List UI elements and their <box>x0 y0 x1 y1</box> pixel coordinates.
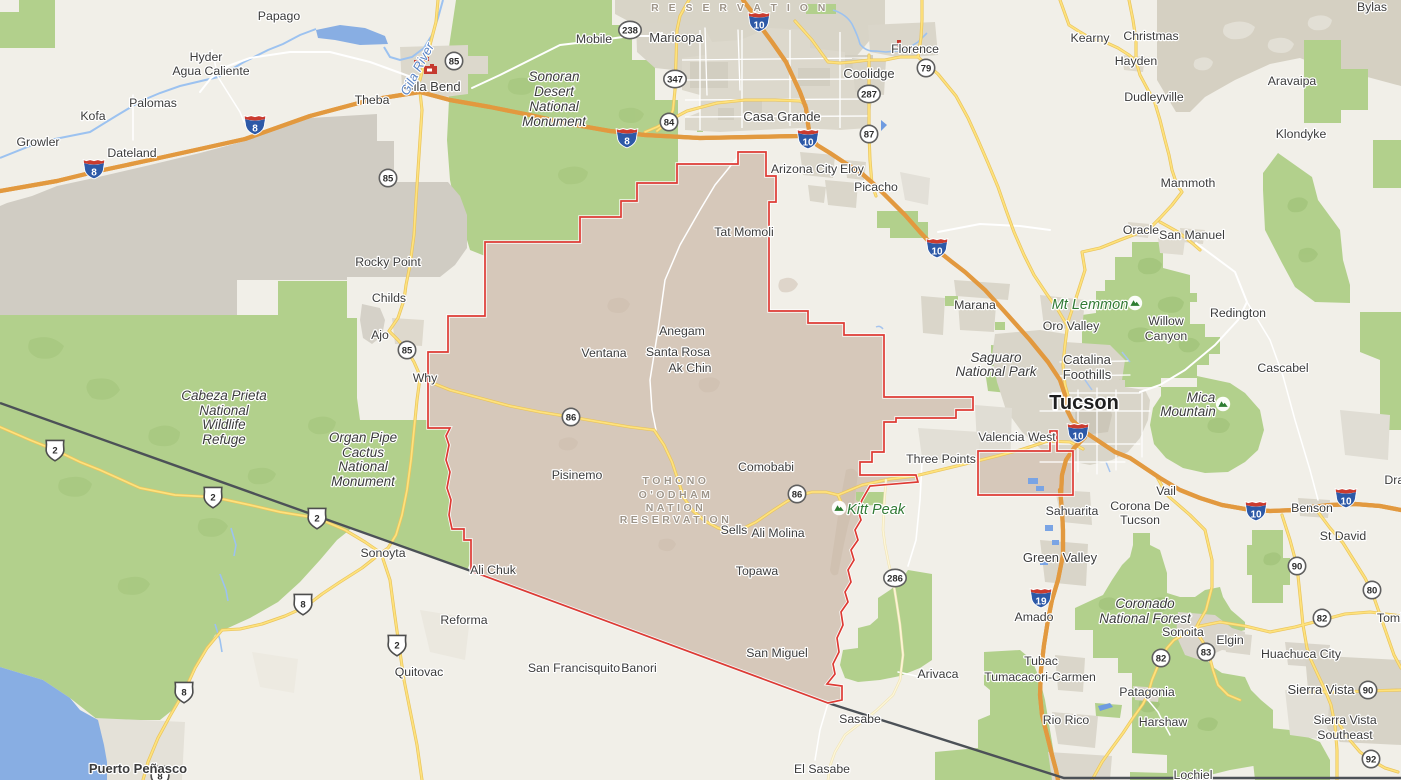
svg-text:National: National <box>199 403 250 418</box>
svg-text:Palomas: Palomas <box>129 96 177 110</box>
svg-text:Oracle: Oracle <box>1123 223 1159 237</box>
svg-text:Bylas: Bylas <box>1357 0 1387 14</box>
svg-text:10: 10 <box>1340 497 1352 508</box>
svg-text:82: 82 <box>1317 614 1328 625</box>
svg-text:Green Valley: Green Valley <box>1023 550 1098 565</box>
svg-text:Pisinemo: Pisinemo <box>552 468 603 482</box>
svg-text:Rio Rico: Rio Rico <box>1043 713 1090 727</box>
svg-text:Aravaipa: Aravaipa <box>1268 74 1317 88</box>
svg-text:Arivaca: Arivaca <box>917 667 958 681</box>
svg-text:National Forest: National Forest <box>1099 611 1192 626</box>
svg-text:Ak Chin: Ak Chin <box>668 361 711 375</box>
svg-text:Anegam: Anegam <box>659 324 705 338</box>
svg-text:8: 8 <box>181 688 186 699</box>
svg-text:Tucson: Tucson <box>1049 392 1119 414</box>
svg-text:85: 85 <box>383 174 394 185</box>
svg-text:Ventana: Ventana <box>581 346 626 360</box>
svg-text:San Manuel: San Manuel <box>1159 228 1225 242</box>
svg-text:Tumacacori-Carmen: Tumacacori-Carmen <box>984 670 1096 684</box>
svg-text:86: 86 <box>566 413 577 424</box>
svg-text:287: 287 <box>861 90 877 101</box>
svg-text:Tat Momoli: Tat Momoli <box>714 225 773 239</box>
svg-text:10: 10 <box>802 138 814 149</box>
svg-text:Theba: Theba <box>355 93 390 107</box>
svg-text:Oro Valley: Oro Valley <box>1043 319 1100 333</box>
svg-text:Sahuarita: Sahuarita <box>1046 504 1099 518</box>
svg-text:Ali Molina: Ali Molina <box>751 526 804 540</box>
svg-text:Mt Lemmon: Mt Lemmon <box>1052 297 1129 313</box>
svg-text:Saguaro: Saguaro <box>970 350 1022 365</box>
svg-text:19: 19 <box>1035 597 1047 608</box>
svg-text:Elgin: Elgin <box>1216 633 1244 647</box>
svg-text:2: 2 <box>210 493 215 504</box>
svg-text:RESERVATION: RESERVATION <box>620 514 733 526</box>
svg-text:Wildlife: Wildlife <box>202 417 245 432</box>
svg-text:Ajo: Ajo <box>371 328 389 342</box>
svg-text:Tombstone: Tombstone <box>1377 611 1401 625</box>
svg-text:8: 8 <box>252 124 258 135</box>
svg-text:Valencia West: Valencia West <box>978 430 1056 444</box>
svg-text:Growler: Growler <box>16 135 59 149</box>
svg-text:83: 83 <box>1201 648 1212 659</box>
svg-text:Huachuca City: Huachuca City <box>1261 647 1342 661</box>
svg-text:Corona De: Corona De <box>1110 499 1170 513</box>
svg-text:Kofa: Kofa <box>80 109 105 123</box>
svg-text:82: 82 <box>1156 654 1167 665</box>
svg-text:85: 85 <box>449 57 460 68</box>
svg-text:Banori: Banori <box>621 661 657 675</box>
svg-text:238: 238 <box>622 26 638 37</box>
svg-text:Casa Grande: Casa Grande <box>743 109 820 124</box>
svg-text:Dragoon: Dragoon <box>1384 473 1401 487</box>
svg-text:8: 8 <box>91 168 97 179</box>
svg-text:Kearny: Kearny <box>1071 31 1111 45</box>
svg-text:Sierra Vista: Sierra Vista <box>1313 713 1376 727</box>
svg-text:Reforma: Reforma <box>440 613 487 627</box>
svg-text:Mammoth: Mammoth <box>1161 176 1216 190</box>
svg-text:8: 8 <box>624 137 630 148</box>
svg-text:Patagonia: Patagonia <box>1119 685 1175 699</box>
svg-text:Mountain: Mountain <box>1160 404 1216 419</box>
svg-text:Santa Rosa: Santa Rosa <box>646 345 710 359</box>
svg-text:Cactus: Cactus <box>342 445 384 460</box>
svg-text:Mobile: Mobile <box>576 32 612 46</box>
svg-text:National Park: National Park <box>955 364 1037 379</box>
svg-text:Ali Chuk: Ali Chuk <box>470 563 517 577</box>
svg-text:Why: Why <box>413 371 438 385</box>
svg-text:Sasabe: Sasabe <box>839 712 881 726</box>
svg-text:Sonoyta: Sonoyta <box>360 546 405 560</box>
svg-text:Dudleyville: Dudleyville <box>1124 90 1184 104</box>
svg-text:Hayden: Hayden <box>1115 54 1158 68</box>
svg-text:10: 10 <box>1250 510 1262 521</box>
svg-text:Dateland: Dateland <box>107 146 156 160</box>
svg-text:Desert: Desert <box>534 84 575 99</box>
svg-text:10: 10 <box>1072 432 1084 443</box>
svg-text:Benson: Benson <box>1291 501 1333 515</box>
svg-text:Organ Pipe: Organ Pipe <box>329 430 397 445</box>
svg-text:El Sasabe: El Sasabe <box>794 762 850 776</box>
svg-text:National: National <box>338 459 389 474</box>
svg-text:286: 286 <box>887 574 903 585</box>
svg-text:Arizona City: Arizona City <box>771 162 838 176</box>
svg-text:Southeast: Southeast <box>1317 728 1373 742</box>
svg-text:2: 2 <box>314 514 319 525</box>
svg-text:Three Points: Three Points <box>906 452 976 466</box>
svg-text:92: 92 <box>1366 755 1377 766</box>
svg-text:10: 10 <box>753 21 765 32</box>
svg-text:St David: St David <box>1320 529 1367 543</box>
svg-text:87: 87 <box>864 130 875 141</box>
svg-text:Willow: Willow <box>1148 314 1184 328</box>
svg-text:O'ODHAM: O'ODHAM <box>639 489 714 501</box>
svg-text:Marana: Marana <box>954 298 996 312</box>
svg-text:Hyder: Hyder <box>190 50 223 64</box>
svg-text:86: 86 <box>792 490 803 501</box>
svg-text:85: 85 <box>402 346 413 357</box>
svg-text:347: 347 <box>667 75 683 86</box>
svg-text:8: 8 <box>300 600 305 611</box>
svg-text:TOHONO: TOHONO <box>643 475 710 487</box>
svg-text:Quitovac: Quitovac <box>395 665 444 679</box>
svg-text:80: 80 <box>1367 586 1378 597</box>
svg-text:Puerto Peñasco: Puerto Peñasco <box>89 761 187 776</box>
svg-text:Harshaw: Harshaw <box>1139 715 1188 729</box>
svg-text:Coronado: Coronado <box>1115 596 1175 611</box>
svg-text:Cascabel: Cascabel <box>1257 361 1308 375</box>
svg-text:Coolidge: Coolidge <box>843 66 894 81</box>
svg-text:Sonoita: Sonoita <box>1162 625 1204 639</box>
svg-text:Vail: Vail <box>1156 484 1176 498</box>
svg-text:R E S E R V A T I O N: R E S E R V A T I O N <box>651 2 829 14</box>
svg-text:90: 90 <box>1292 562 1303 573</box>
svg-text:Christmas: Christmas <box>1123 29 1178 43</box>
svg-text:Kitt Peak: Kitt Peak <box>847 502 906 518</box>
svg-text:Amado: Amado <box>1015 610 1054 624</box>
svg-text:10: 10 <box>931 247 943 258</box>
svg-text:Canyon: Canyon <box>1145 329 1188 343</box>
svg-text:2: 2 <box>394 641 399 652</box>
svg-text:Catalina: Catalina <box>1063 352 1111 367</box>
svg-text:National: National <box>529 99 580 114</box>
svg-text:Picacho: Picacho <box>854 180 898 194</box>
svg-text:Monument: Monument <box>522 114 587 129</box>
svg-text:Comobabi: Comobabi <box>738 460 794 474</box>
svg-text:Cabeza Prieta: Cabeza Prieta <box>181 388 267 403</box>
svg-text:San Miguel: San Miguel <box>746 646 808 660</box>
svg-text:Topawa: Topawa <box>736 564 779 578</box>
svg-text:Tubac: Tubac <box>1024 654 1058 668</box>
svg-text:Tucson: Tucson <box>1120 513 1160 527</box>
svg-text:Eloy: Eloy <box>840 162 865 176</box>
svg-text:Redington: Redington <box>1210 306 1266 320</box>
svg-text:Rocky Point: Rocky Point <box>355 255 421 269</box>
svg-text:Childs: Childs <box>372 291 406 305</box>
svg-text:San Francisquito: San Francisquito <box>528 661 620 675</box>
svg-text:Papago: Papago <box>258 9 301 23</box>
svg-text:Foothills: Foothills <box>1063 367 1112 382</box>
svg-text:90: 90 <box>1363 686 1374 697</box>
svg-text:Klondyke: Klondyke <box>1276 127 1327 141</box>
svg-text:Refuge: Refuge <box>202 432 246 447</box>
svg-text:NATION: NATION <box>646 502 706 514</box>
svg-text:Sierra Vista: Sierra Vista <box>1288 682 1356 697</box>
svg-text:Florence: Florence <box>891 42 939 56</box>
svg-text:Agua Caliente: Agua Caliente <box>172 64 249 78</box>
svg-text:Monument: Monument <box>331 474 396 489</box>
svg-text:Lochiel: Lochiel <box>1174 768 1213 780</box>
svg-text:Maricopa: Maricopa <box>649 30 703 45</box>
svg-text:Sonoran: Sonoran <box>528 69 579 84</box>
svg-text:Mica: Mica <box>1187 390 1216 405</box>
svg-text:2: 2 <box>52 446 57 457</box>
svg-text:84: 84 <box>664 118 675 129</box>
svg-text:79: 79 <box>921 64 932 75</box>
